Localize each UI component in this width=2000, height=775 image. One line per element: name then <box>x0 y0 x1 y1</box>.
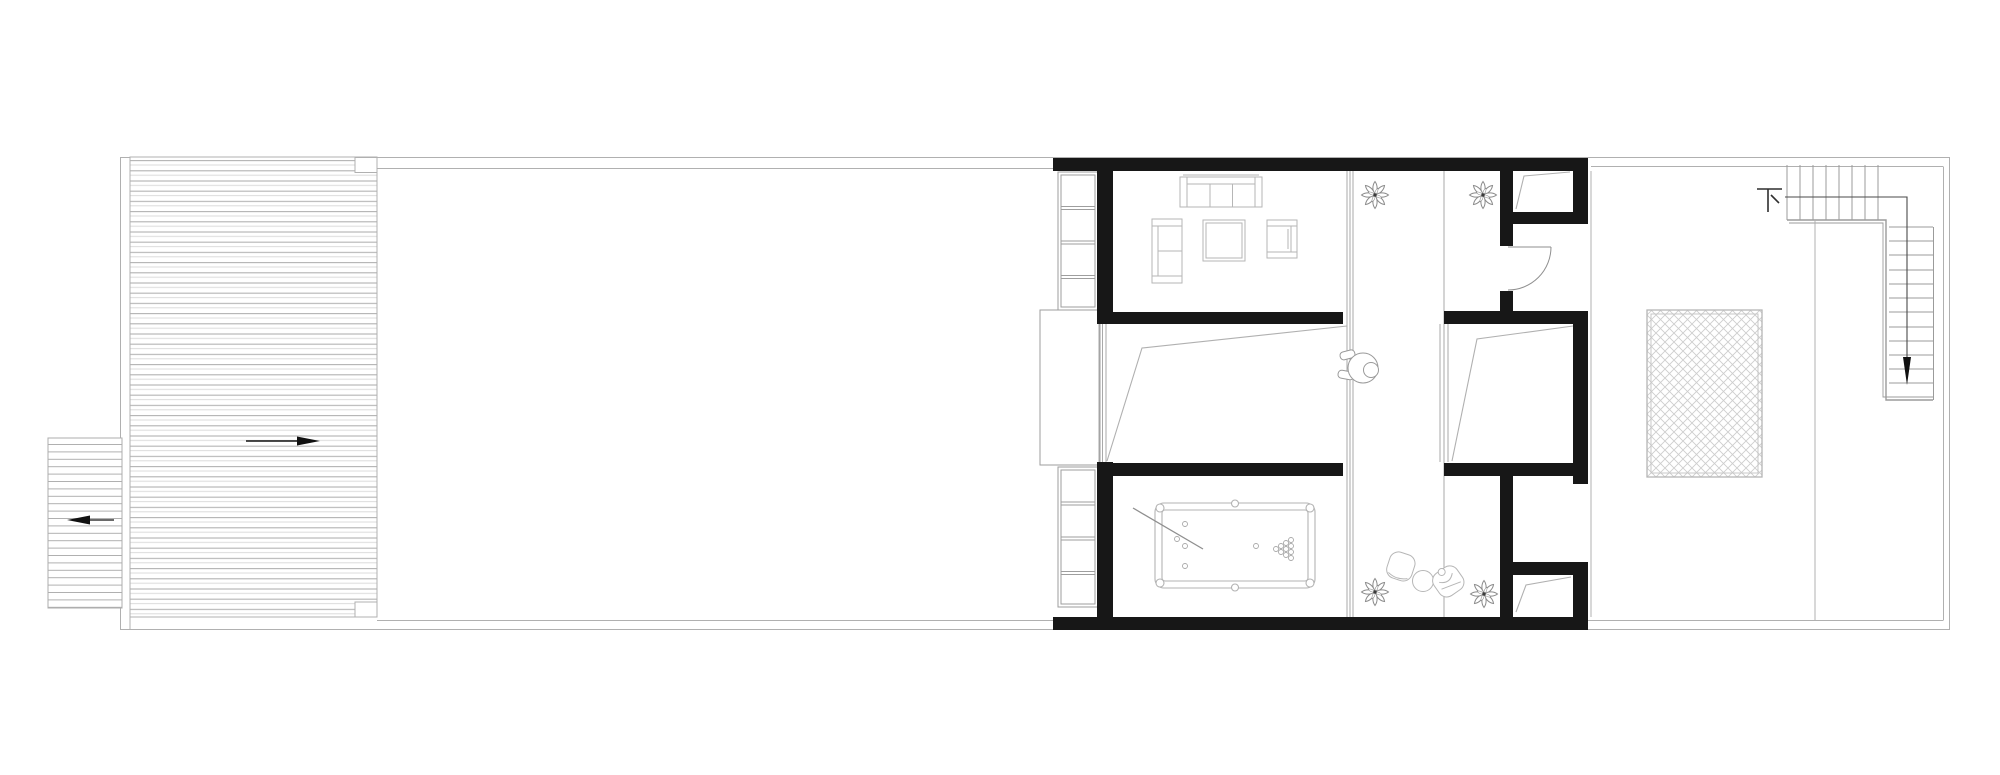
sofa-three-seat <box>1180 175 1262 207</box>
north-closet-fold <box>1516 172 1570 209</box>
floor-plan-canvas: 下 <box>0 0 2000 775</box>
ladder-bottom <box>1058 467 1098 607</box>
wall-corridor-east-upper <box>1500 158 1513 246</box>
wall-bedroom-billiard <box>1097 463 1343 476</box>
deck-corner-post-top <box>355 158 377 173</box>
corridor-seating <box>1384 550 1467 601</box>
wall-east-lower-divider <box>1444 463 1588 476</box>
stair-down-glyph <box>1757 189 1782 212</box>
ladder-top <box>1058 172 1098 310</box>
deck-corner-post-bottom <box>355 602 377 617</box>
plant-icon <box>1362 182 1389 209</box>
stair-lower-flight <box>1889 227 1934 400</box>
plant-icon <box>1470 182 1497 209</box>
billiard-room <box>1133 500 1315 591</box>
wall-east-mid <box>1573 311 1588 484</box>
planter-box <box>1040 310 1100 465</box>
staircase <box>1757 165 1934 620</box>
west-facade-elements <box>1040 172 1100 607</box>
wall-corridor-east-mid <box>1500 291 1513 324</box>
wall-west-lower <box>1097 462 1113 630</box>
wall-east-upper-divider <box>1444 311 1588 324</box>
side-ramp <box>48 438 122 608</box>
armchair <box>1267 220 1297 258</box>
arrow-down-icon <box>1903 357 1911 385</box>
wall-west-upper <box>1097 158 1113 324</box>
walls <box>1053 158 1588 630</box>
interior-door <box>1508 247 1551 290</box>
west-bedroom-fold <box>1107 326 1347 461</box>
plant-icon <box>1471 581 1498 608</box>
wall-corridor-east-lower <box>1500 463 1513 630</box>
wall-living-bedroom <box>1097 312 1343 324</box>
door-swing-arc <box>1508 247 1551 290</box>
corridor-glass-west <box>1347 171 1353 617</box>
stair-railing-inner <box>1789 223 1933 397</box>
south-closet-fold <box>1516 577 1571 612</box>
stair-railing <box>1787 220 1933 400</box>
deck-striped-area <box>130 157 377 617</box>
coffee-table <box>1203 220 1245 261</box>
terrace-rug <box>1647 310 1762 477</box>
wall-east-bottom <box>1573 562 1588 630</box>
side-table <box>1413 571 1434 592</box>
stair-upper-flight <box>1787 165 1878 220</box>
person-icon <box>1337 349 1378 383</box>
plants <box>1362 182 1498 608</box>
corridor-glass-east <box>1440 171 1448 617</box>
sofa-two-seat <box>1152 219 1182 283</box>
floor-plan-drawing <box>0 0 2000 775</box>
east-bedroom-fold <box>1452 326 1573 461</box>
deck <box>130 157 377 617</box>
wall-east-top <box>1573 158 1588 224</box>
pool-table <box>1155 500 1315 591</box>
living-room-furniture <box>1152 175 1297 283</box>
lounge-chair-right <box>1428 561 1467 600</box>
plant-icon <box>1362 579 1389 606</box>
stair-direction-arrow <box>1785 197 1911 385</box>
